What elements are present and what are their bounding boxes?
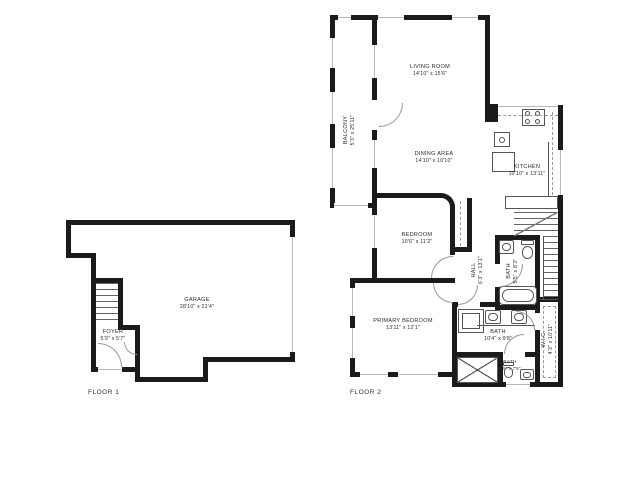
wall <box>388 372 398 377</box>
window <box>350 288 355 316</box>
kitchen-sink-basin <box>499 137 505 143</box>
room-label-bath-primary: BATH 10'4" x 9'8" <box>484 329 512 343</box>
wall <box>450 247 472 252</box>
bathtub-inner <box>502 289 534 302</box>
wall <box>535 310 540 313</box>
room-name: HALL <box>471 256 478 284</box>
door-swing-arc <box>433 283 453 303</box>
room-name: BEDROOM <box>402 232 433 239</box>
curved-wall-corner <box>437 193 455 207</box>
window <box>360 372 388 377</box>
wall <box>118 278 123 330</box>
room-name: BALCONY <box>343 115 350 146</box>
door-swing-arc <box>124 342 137 355</box>
toilet-tank <box>521 240 534 245</box>
open-to-below-x <box>457 357 498 383</box>
toilet-bowl <box>522 246 533 259</box>
wall <box>372 15 377 45</box>
window <box>334 203 368 208</box>
window <box>98 367 122 372</box>
room-label-bedroom: BEDROOM 10'6" x 11'2" <box>402 232 433 246</box>
shower-inner <box>462 313 480 329</box>
kitchen-cabinet-dashed <box>498 110 558 116</box>
room-dims: 4'3" x 10'11" <box>548 324 555 355</box>
room-name: DINING AREA <box>415 151 454 158</box>
window <box>330 148 335 188</box>
room-label-kitchen: KITCHEN 10'10" x 13'11" <box>509 164 546 178</box>
stair-bottom-line <box>540 299 558 300</box>
room-dims: 10'6" x 11'2" <box>402 239 433 246</box>
room-dims: 28'10" x 21'4" <box>180 304 214 311</box>
door-swing-arc <box>379 103 403 127</box>
room-dims: 6'3" x 13'1" <box>478 256 485 284</box>
wall <box>203 357 295 362</box>
room-dims: 14'10" x 15'6" <box>410 71 450 78</box>
room-name: KITCHEN <box>509 164 546 171</box>
room-name: BATH <box>506 259 513 284</box>
bath-sink-basin <box>502 243 511 251</box>
wall <box>438 372 457 377</box>
window <box>452 15 478 20</box>
window <box>330 92 335 124</box>
wall <box>330 68 335 92</box>
room-name: BATH <box>484 329 512 336</box>
door-swing-arc <box>516 311 535 330</box>
room-dims: 5'5" x 8'3" <box>513 259 520 284</box>
stair-break-line <box>514 212 558 236</box>
wall <box>290 220 295 237</box>
window <box>330 38 335 68</box>
room-dims: 14'10" x 10'10" <box>415 158 454 165</box>
kitchen-counter-bar <box>505 196 558 209</box>
door-swing-arc <box>98 343 122 367</box>
wall <box>490 104 498 109</box>
wall <box>372 130 377 140</box>
wall <box>330 15 335 38</box>
wall <box>330 124 335 148</box>
room-label-wic: W.I.C. 4'3" x 10'11" <box>541 324 555 355</box>
floor2-label: FLOOR 2 <box>350 389 381 396</box>
floorplan: GARAGE 28'10" x 21'4" FOYER 5'9" x 5'7" … <box>0 0 640 480</box>
room-name: W.I.C. <box>541 324 548 355</box>
kitchen-cabinet-dashed <box>552 112 553 195</box>
window <box>350 328 355 358</box>
room-label-bath-small: BATH 5'5" x 7'5" <box>499 360 520 372</box>
wall <box>372 78 377 100</box>
wall <box>404 15 452 20</box>
wall <box>558 105 563 150</box>
wall <box>535 330 540 387</box>
wall <box>485 15 490 110</box>
room-label-primary-bedroom: PRIMARY BEDROOM 13'11" x 12'1" <box>373 318 433 332</box>
wall <box>122 367 140 372</box>
door-swing-arc <box>431 256 453 278</box>
room-dims: 5'9" x 5'7" <box>101 336 126 343</box>
room-dims: 5'3" x 25'11" <box>350 115 357 146</box>
vanity-sink-left-basin <box>488 313 498 321</box>
room-name: FOYER <box>101 329 126 336</box>
window <box>372 45 377 78</box>
window <box>506 382 530 387</box>
stove-burner <box>535 119 540 124</box>
wall <box>372 248 377 283</box>
wall <box>350 316 355 328</box>
wall <box>467 198 472 252</box>
wall <box>372 193 437 198</box>
room-label-hall: HALL 6'3" x 13'1" <box>471 256 485 284</box>
closet-rod-dashed <box>460 201 461 246</box>
wall <box>66 220 295 225</box>
wall <box>66 220 71 258</box>
window <box>338 15 351 20</box>
stove-burner <box>525 119 530 124</box>
room-dims: 10'4" x 9'8" <box>484 336 512 343</box>
room-name: GARAGE <box>180 297 214 304</box>
room-dims: 5'5" x 7'5" <box>499 366 520 372</box>
wall <box>558 195 563 387</box>
room-dims: 10'10" x 13'11" <box>509 171 546 178</box>
window <box>558 150 563 195</box>
floor1-label: FLOOR 1 <box>88 389 119 396</box>
powder-sink-basin <box>523 372 531 378</box>
window <box>378 15 404 20</box>
room-name: LIVING ROOM <box>410 64 450 71</box>
stair-rail-line <box>543 236 544 299</box>
window <box>290 237 295 352</box>
room-dims: 13'11" x 12'1" <box>373 325 433 332</box>
kitchen-counter-line <box>548 142 549 197</box>
door-swing-arc <box>458 285 478 305</box>
room-label-garage: GARAGE 28'10" x 21'4" <box>180 297 214 311</box>
room-label-balcony: BALCONY 5'3" x 25'11" <box>343 115 357 146</box>
stairs-floor1 <box>96 283 118 325</box>
wall <box>350 358 355 377</box>
room-label-dining-area: DINING AREA 14'10" x 10'10" <box>415 151 454 165</box>
room-name: PRIMARY BEDROOM <box>373 318 433 325</box>
room-label-living-room: LIVING ROOM 14'10" x 15'6" <box>410 64 450 78</box>
wall <box>135 377 208 382</box>
stairs-floor2-lower <box>543 236 558 299</box>
room-label-foyer: FOYER 5'9" x 5'7" <box>101 329 126 343</box>
window <box>372 140 377 168</box>
room-label-bath-upper: BATH 5'5" x 8'3" <box>506 259 520 284</box>
window <box>372 215 377 248</box>
window <box>398 372 438 377</box>
